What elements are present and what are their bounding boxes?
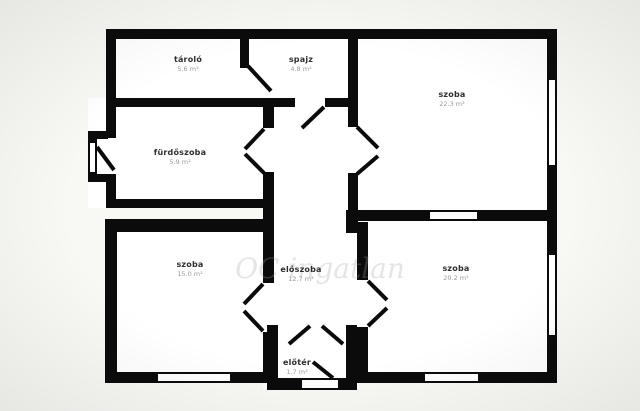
room-interiors <box>88 29 557 390</box>
entry-door-slot <box>302 380 338 388</box>
floorplan-image: OC ingatlan tároló 5.6 m² spajz 4.8 m² s… <box>0 0 640 411</box>
floorplan-drawing <box>0 0 640 411</box>
passage-between-szoba <box>430 212 477 219</box>
window-right-lower <box>549 255 555 335</box>
window-bottom-right <box>425 374 478 381</box>
window-right-upper <box>549 80 555 165</box>
window-bottom-left <box>158 374 230 381</box>
bay-window <box>90 143 95 172</box>
